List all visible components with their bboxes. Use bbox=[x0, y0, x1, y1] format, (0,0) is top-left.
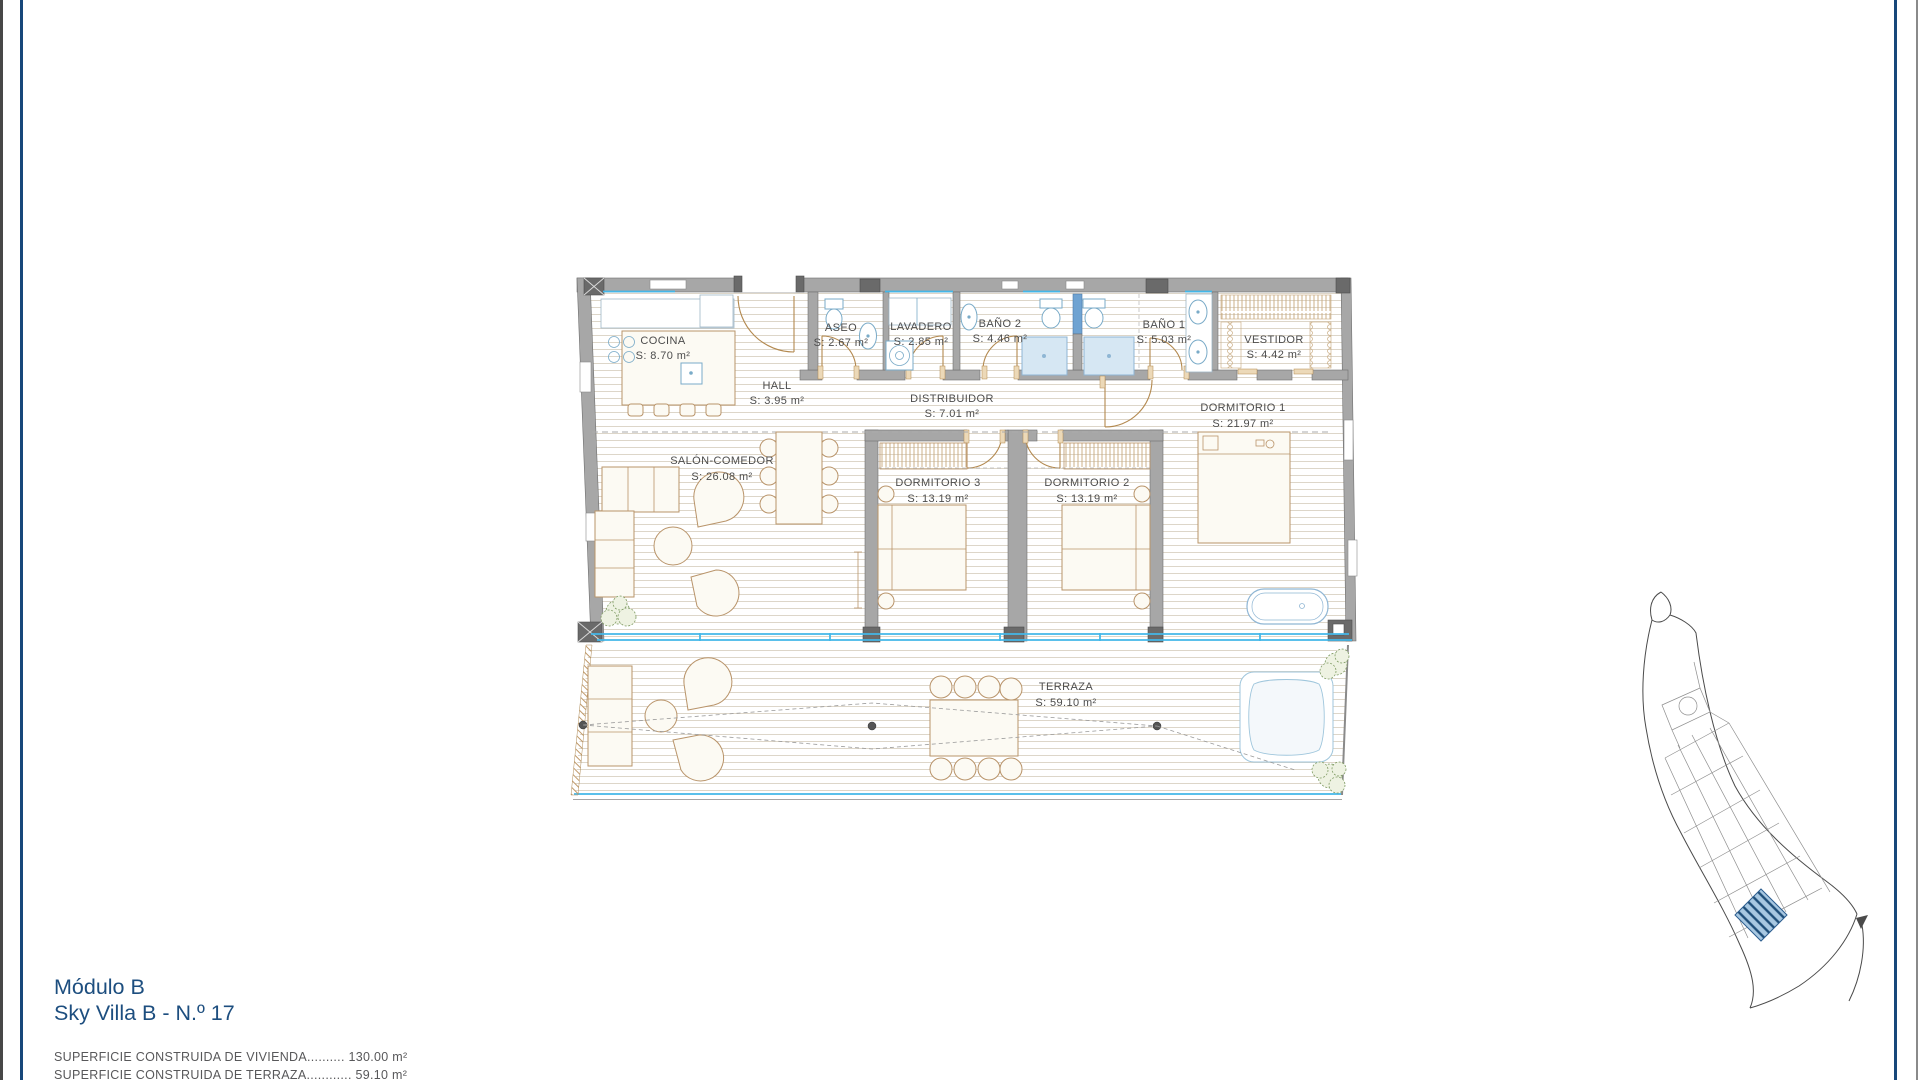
label-distribuidor-area: S: 7.01 m² bbox=[925, 408, 980, 420]
surface-summary: SUPERFICIE CONSTRUIDA DE VIVIENDA.......… bbox=[54, 1048, 407, 1080]
label-bano2: BAÑO 2 bbox=[979, 317, 1022, 330]
module-title: Módulo B bbox=[54, 974, 235, 1000]
bedroom3-furniture bbox=[878, 443, 967, 609]
title-block: Módulo B Sky Villa B - N.º 17 bbox=[54, 974, 235, 1026]
label-aseo-area: S: 2.67 m² bbox=[814, 337, 869, 349]
label-vestidor: VESTIDOR bbox=[1244, 334, 1303, 346]
label-bano1-area: S: 5.03 m² bbox=[1137, 334, 1192, 346]
label-hall: HALL bbox=[762, 380, 791, 392]
highlighted-plot bbox=[1735, 889, 1787, 941]
villa-title: Sky Villa B - N.º 17 bbox=[54, 1000, 235, 1026]
surface-line-vivienda: SUPERFICIE CONSTRUIDA DE VIVIENDA.......… bbox=[54, 1048, 407, 1066]
label-distribuidor: DISTRIBUIDOR bbox=[910, 393, 994, 405]
label-vestidor-area: S: 4.42 m² bbox=[1247, 349, 1302, 361]
label-aseo: ASEO bbox=[825, 322, 857, 334]
label-cocina: COCINA bbox=[640, 335, 685, 347]
label-lavadero: LAVADERO bbox=[890, 321, 952, 333]
label-dormitorio1-area: S: 21.97 m² bbox=[1212, 418, 1273, 430]
label-bano1: BAÑO 1 bbox=[1143, 318, 1186, 331]
plan-sheet: COCINA S: 8.70 m² HALL S: 3.95 m² ASEO S… bbox=[0, 0, 1920, 1080]
label-salon: SALÓN-COMEDOR bbox=[670, 454, 774, 467]
site-plots bbox=[1662, 662, 1830, 938]
label-dormitorio2: DORMITORIO 2 bbox=[1044, 477, 1129, 489]
label-cocina-area: S: 8.70 m² bbox=[636, 350, 691, 362]
label-hall-area: S: 3.95 m² bbox=[750, 395, 805, 407]
glass-divider bbox=[1073, 294, 1082, 334]
drain bbox=[868, 722, 876, 730]
label-terraza: TERRAZA bbox=[1039, 681, 1093, 693]
label-bano2-area: S: 4.46 m² bbox=[973, 333, 1028, 345]
label-dormitorio3: DORMITORIO 3 bbox=[895, 477, 980, 489]
surface-line-terraza: SUPERFICIE CONSTRUIDA DE TERRAZA........… bbox=[54, 1066, 407, 1080]
label-salon-area: S: 26.08 m² bbox=[691, 471, 752, 483]
floor-plan-drawing: COCINA S: 8.70 m² HALL S: 3.95 m² ASEO S… bbox=[0, 0, 1920, 1080]
site-location-plan bbox=[1643, 592, 1868, 1008]
site-arrowhead bbox=[1856, 915, 1868, 929]
label-terraza-area: S: 59.10 m² bbox=[1035, 697, 1096, 709]
label-dormitorio2-area: S: 13.19 m² bbox=[1056, 493, 1117, 505]
label-dormitorio3-area: S: 13.19 m² bbox=[907, 493, 968, 505]
label-lavadero-area: S: 2.85 m² bbox=[894, 336, 949, 348]
apartment-plan: COCINA S: 8.70 m² HALL S: 3.95 m² ASEO S… bbox=[571, 272, 1357, 800]
bedroom2-furniture bbox=[1062, 443, 1150, 609]
spa bbox=[1240, 672, 1333, 762]
label-dormitorio1: DORMITORIO 1 bbox=[1200, 402, 1285, 414]
